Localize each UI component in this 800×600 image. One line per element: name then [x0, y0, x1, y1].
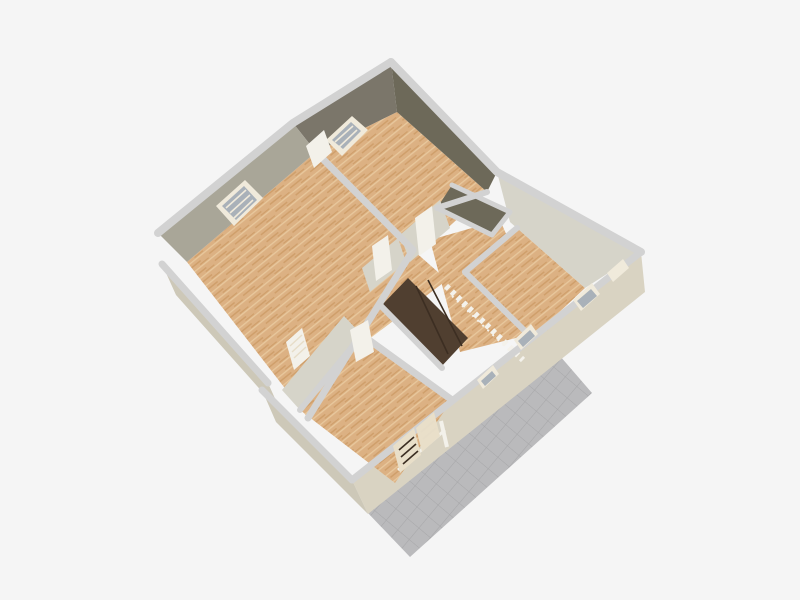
render-canvas	[0, 0, 800, 600]
floor-plan-3d-viewport[interactable]	[0, 0, 800, 600]
